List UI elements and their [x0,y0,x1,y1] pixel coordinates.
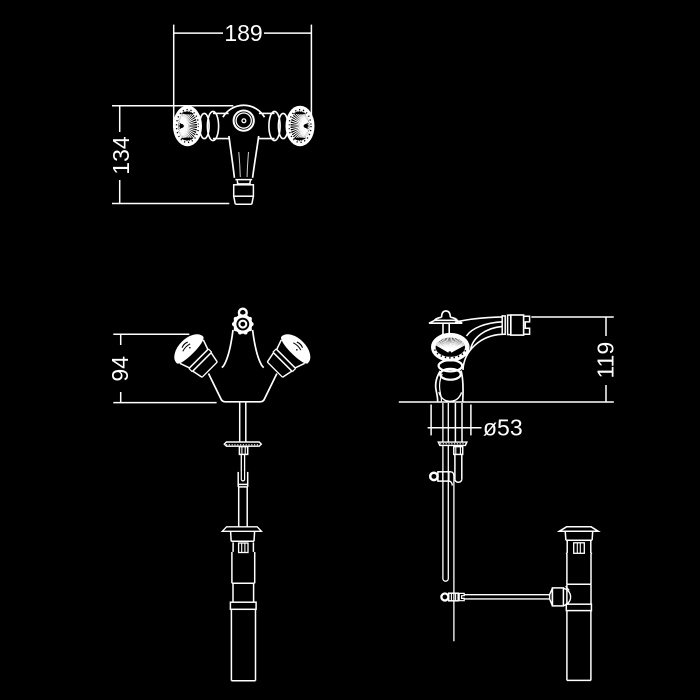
svg-text:189: 189 [224,20,262,46]
svg-text:94: 94 [107,356,133,382]
svg-text:ø53: ø53 [483,415,523,441]
svg-text:119: 119 [593,342,619,379]
svg-text:134: 134 [108,136,134,175]
